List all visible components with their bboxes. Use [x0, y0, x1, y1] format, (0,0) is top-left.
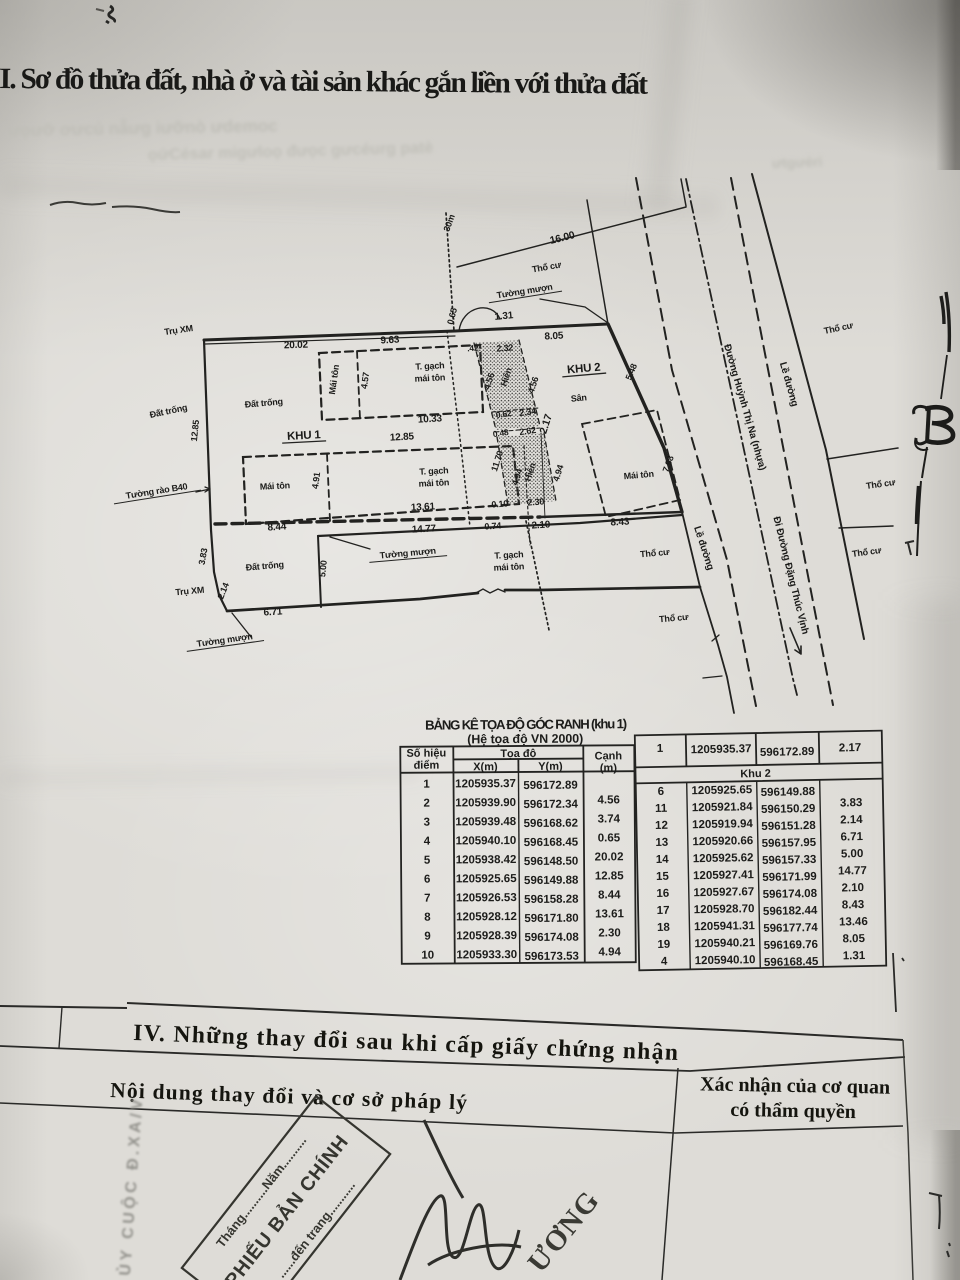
svg-text:IV. Những thay đổi sau khi cấp: IV. Những thay đổi sau khi cấp giấy chứn… [133, 1020, 679, 1066]
svg-text:596168.45: 596168.45 [764, 956, 819, 969]
svg-text:1205928.39: 1205928.39 [456, 930, 517, 942]
svg-text:596157.33: 596157.33 [762, 854, 817, 867]
svg-text:14: 14 [656, 854, 670, 866]
svg-text:12: 12 [655, 820, 668, 832]
svg-text:16.00: 16.00 [549, 229, 577, 247]
svg-text:596149.88: 596149.88 [524, 875, 579, 887]
svg-text:ưọưỡ ơưcủ nẵưg iưỡnò ưdemoc: ưọưỡ ơưcủ nẵưg iưỡnò ưdemoc [8, 115, 278, 140]
svg-text:20.02: 20.02 [284, 340, 309, 352]
svg-text:Thổ cư: Thổ cư [823, 320, 854, 336]
svg-text:0.65: 0.65 [598, 832, 621, 844]
svg-text:2.30: 2.30 [598, 927, 620, 939]
svg-text:2.17: 2.17 [537, 413, 555, 436]
svg-text:II. Sơ đồ thửa đất, nhà ở và t: II. Sơ đồ thửa đất, nhà ở và tài sản khá… [0, 63, 648, 101]
svg-text:1205940.10: 1205940.10 [456, 835, 517, 847]
svg-text:Trụ XM: Trụ XM [175, 585, 205, 597]
svg-text:8.44: 8.44 [267, 521, 287, 533]
svg-text:Khu 2: Khu 2 [740, 768, 771, 781]
svg-text:.42: .42 [467, 343, 479, 354]
svg-text:Đất trống: Đất trống [244, 396, 283, 409]
svg-text:3.74: 3.74 [598, 813, 621, 825]
svg-text:0.10: 0.10 [491, 498, 509, 509]
svg-text:8.43: 8.43 [842, 899, 865, 911]
svg-text:1205928.12: 1205928.12 [456, 911, 517, 923]
svg-text:1205921.84: 1205921.84 [692, 801, 754, 814]
svg-text:Mái tôn: Mái tôn [623, 469, 654, 482]
svg-text:14.77: 14.77 [412, 523, 437, 535]
svg-text:1: 1 [657, 743, 664, 755]
svg-text:10: 10 [421, 950, 434, 962]
svg-text:có thẩm quyền: có thẩm quyền [730, 1099, 856, 1123]
svg-text:6.71: 6.71 [840, 831, 863, 843]
svg-text:1205941.31: 1205941.31 [694, 920, 756, 933]
svg-text:2: 2 [423, 798, 429, 810]
svg-text:596158.28: 596158.28 [524, 894, 579, 906]
svg-text:3.83: 3.83 [197, 547, 210, 565]
svg-text:4: 4 [661, 956, 668, 968]
svg-text:Thổ cư: Thổ cư [865, 477, 896, 491]
svg-text:596171.99: 596171.99 [762, 871, 817, 884]
svg-text:596172.34: 596172.34 [523, 799, 578, 811]
svg-text:20.02: 20.02 [595, 851, 624, 863]
svg-text:6: 6 [424, 874, 430, 886]
svg-text:1205928.70: 1205928.70 [694, 903, 755, 916]
svg-text:2.10: 2.10 [841, 882, 864, 894]
svg-text:1205926.53: 1205926.53 [456, 892, 517, 904]
svg-text:596168.45: 596168.45 [524, 837, 579, 849]
svg-text:9: 9 [424, 931, 430, 943]
svg-text:Trụ XM: Trụ XM [164, 323, 194, 337]
svg-text:14.77: 14.77 [838, 865, 867, 878]
svg-text:596172.89: 596172.89 [523, 780, 577, 792]
svg-text:Tường mượn: Tường mượn [379, 546, 436, 561]
svg-text:596171.80: 596171.80 [524, 913, 578, 925]
svg-text:2.14: 2.14 [215, 581, 231, 600]
svg-text:4: 4 [424, 836, 431, 848]
svg-text:Đất trống: Đất trống [245, 559, 284, 572]
svg-text:1205940.21: 1205940.21 [694, 937, 756, 950]
svg-text:ỦY CUỘC Đ.XA/V: ỦY CUỘC Đ.XA/V [115, 1095, 147, 1276]
svg-text:Thổ cư: Thổ cư [851, 545, 882, 559]
svg-text:Nội dung thay đổi và cơ sở phá: Nội dung thay đổi và cơ sở pháp lý [110, 1078, 468, 1114]
svg-text:Mái tôn: Mái tôn [327, 364, 341, 395]
svg-text:596157.95: 596157.95 [762, 837, 817, 850]
svg-text:Số hiệu: Số hiệu [406, 747, 446, 759]
svg-text:2.30: 2.30 [527, 496, 545, 507]
svg-text:4.56: 4.56 [597, 794, 619, 806]
svg-text:15: 15 [656, 871, 670, 883]
svg-text:Xác nhận của cơ quan: Xác nhận của cơ quan [700, 1073, 890, 1098]
svg-text:596169.76: 596169.76 [764, 939, 819, 952]
svg-text:1205935.37: 1205935.37 [691, 743, 752, 756]
svg-text:4.94: 4.94 [551, 463, 566, 482]
svg-text:mái tôn: mái tôn [414, 372, 445, 384]
svg-text:12.85: 12.85 [595, 870, 624, 882]
svg-text:mái tôn: mái tôn [418, 477, 449, 489]
svg-text:1205925.65: 1205925.65 [456, 873, 517, 885]
svg-text:13: 13 [655, 837, 668, 849]
svg-text:0.74: 0.74 [484, 520, 502, 531]
svg-text:2.32: 2.32 [496, 342, 514, 353]
svg-text:5.00: 5.00 [317, 560, 329, 578]
svg-text:T. gạch: T. gạch [419, 465, 449, 477]
svg-text:596174.08: 596174.08 [763, 888, 818, 901]
svg-text:9.63: 9.63 [380, 334, 400, 346]
svg-text:1205925.65: 1205925.65 [691, 784, 753, 797]
svg-text:1205919.94: 1205919.94 [692, 818, 754, 831]
svg-text:13.61: 13.61 [411, 501, 436, 513]
svg-text:12.85: 12.85 [390, 431, 415, 443]
svg-text:17: 17 [657, 905, 670, 917]
svg-text:596151.28: 596151.28 [761, 820, 816, 833]
svg-text:T. gạch: T. gạch [415, 360, 445, 372]
svg-text:596148.50: 596148.50 [524, 856, 578, 868]
svg-text:3.83: 3.83 [840, 797, 863, 809]
svg-text:1205939.48: 1205939.48 [455, 816, 516, 828]
svg-text:6.71: 6.71 [263, 606, 283, 618]
svg-text:Sân: Sân [570, 392, 587, 403]
svg-text:8.43: 8.43 [610, 516, 630, 528]
svg-text:ọứCésar migưloọ đưọc gưcéurg p: ọứCésar migưloọ đưọc gưcéurg patè [148, 140, 434, 164]
svg-text:1205933.30: 1205933.30 [456, 949, 517, 961]
svg-text:mái tôn: mái tôn [493, 561, 524, 573]
svg-text:5.00: 5.00 [841, 848, 864, 860]
svg-text:596149.88: 596149.88 [761, 786, 816, 799]
svg-text:Thổ cư: Thổ cư [640, 547, 671, 560]
svg-text:11: 11 [655, 803, 668, 815]
svg-text:Thổ cư: Thổ cư [531, 259, 562, 274]
svg-text:1205940.10: 1205940.10 [695, 954, 756, 967]
svg-text:596177.74: 596177.74 [763, 922, 818, 935]
svg-text:(m): (m) [600, 762, 618, 774]
svg-text:Tọa độ: Tọa độ [500, 748, 536, 760]
svg-text:8: 8 [424, 912, 431, 924]
svg-text:2.14: 2.14 [840, 814, 863, 826]
svg-text:8.44: 8.44 [598, 889, 621, 901]
svg-text:596173.53: 596173.53 [525, 951, 579, 963]
svg-text:Cạnh: Cạnh [595, 750, 623, 762]
svg-text:16: 16 [656, 888, 669, 900]
svg-text:3: 3 [424, 817, 430, 829]
svg-text:Tường rào B40: Tường rào B40 [125, 481, 188, 501]
svg-text:10.33: 10.33 [418, 413, 443, 425]
svg-text:1205920.66: 1205920.66 [692, 835, 753, 848]
svg-text:1.31: 1.31 [494, 310, 514, 323]
svg-text:điểm: điểm [414, 760, 440, 772]
svg-text:596150.29: 596150.29 [761, 803, 816, 816]
svg-text:1205935.37: 1205935.37 [455, 778, 516, 790]
svg-text:7: 7 [424, 893, 430, 905]
svg-text:(Hệ tọa độ VN 2000): (Hệ tọa độ VN 2000) [467, 732, 583, 747]
svg-text:1: 1 [423, 779, 430, 791]
svg-text:ƯƠNG: ƯƠNG [522, 1184, 607, 1278]
svg-text:596174.08: 596174.08 [524, 932, 579, 944]
svg-text:2.10: 2.10 [531, 519, 551, 531]
svg-text:1205938.42: 1205938.42 [456, 854, 517, 866]
svg-text:BẢNG KÊ TỌA ĐỘ GÓC RANH (khu 1: BẢNG KÊ TỌA ĐỘ GÓC RANH (khu 1) [425, 716, 627, 732]
svg-text:ưtgưẻri: ưtgưẻri [772, 153, 823, 171]
svg-text:5: 5 [424, 855, 431, 867]
svg-text:4.91: 4.91 [310, 471, 322, 489]
svg-text:Đất trống: Đất trống [149, 402, 188, 420]
svg-text:18: 18 [657, 922, 671, 934]
svg-text:1205927.67: 1205927.67 [693, 886, 754, 899]
svg-text:6: 6 [658, 786, 665, 798]
svg-text:30m: 30m [442, 213, 457, 233]
svg-text:X(m): X(m) [473, 761, 498, 773]
svg-text:13.46: 13.46 [839, 916, 868, 929]
svg-text:1205925.62: 1205925.62 [693, 852, 754, 865]
svg-text:Thổ cư: Thổ cư [659, 612, 690, 625]
svg-text:Mái tôn: Mái tôn [260, 480, 291, 492]
svg-text:0.65: 0.65 [445, 307, 459, 326]
svg-text:1.31: 1.31 [843, 950, 866, 962]
svg-text:19: 19 [657, 939, 670, 951]
svg-text:1205927.41: 1205927.41 [693, 869, 755, 882]
svg-text:T. gạch: T. gạch [494, 549, 524, 561]
svg-text:13.61: 13.61 [595, 908, 624, 920]
svg-text:4.94: 4.94 [598, 946, 621, 958]
svg-text:Lề đường: Lề đường [777, 361, 801, 408]
svg-text:4.57: 4.57 [359, 371, 371, 389]
svg-text:Y(m): Y(m) [538, 761, 563, 773]
svg-text:2.17: 2.17 [839, 742, 862, 754]
svg-text:8.05: 8.05 [842, 933, 865, 945]
svg-text:596168.62: 596168.62 [524, 818, 578, 830]
svg-text:12.85: 12.85 [189, 419, 201, 442]
svg-text:596172.89: 596172.89 [760, 746, 815, 759]
svg-text:7.98: 7.98 [661, 454, 676, 473]
svg-text:Đi Đường Đặng Thúc Vịnh: Đi Đường Đặng Thúc Vịnh [770, 515, 810, 635]
svg-text:596182.44: 596182.44 [763, 905, 818, 918]
svg-text:1205939.90: 1205939.90 [455, 797, 516, 809]
svg-text:8.05: 8.05 [544, 330, 564, 342]
